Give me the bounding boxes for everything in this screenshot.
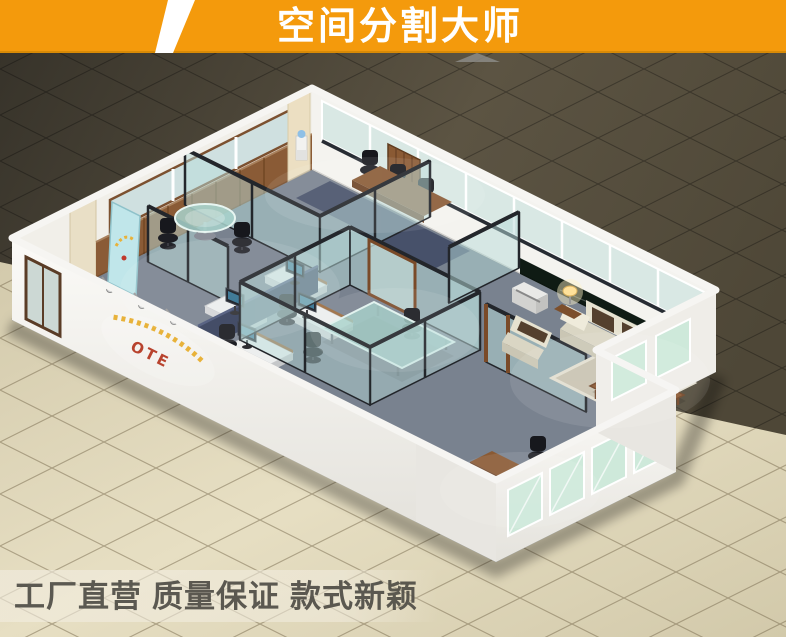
footer-phrase-quality-guarantee: 质量保证	[152, 579, 280, 615]
water-dispenser	[296, 130, 307, 160]
banner: 空间分割大师	[0, 0, 786, 53]
promo-image: OTE	[0, 0, 786, 637]
footer-band: 工厂直营 质量保证 款式新颖	[0, 570, 438, 622]
banner-title: 空间分割大师	[277, 4, 523, 48]
footer-phrase-factory-direct: 工厂直营	[14, 579, 142, 615]
office-render-scene: OTE	[0, 0, 786, 637]
footer-phrase-novel-styles: 款式新颖	[290, 579, 418, 615]
